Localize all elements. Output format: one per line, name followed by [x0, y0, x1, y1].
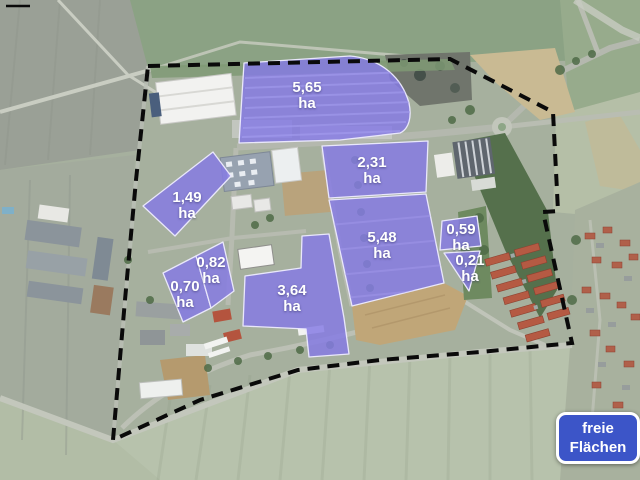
legend-free-areas: freie Flächen	[556, 412, 640, 464]
legend-line-1: freie	[559, 419, 637, 438]
parcel-5-65-polygon	[239, 56, 410, 143]
parcel-2-31-polygon	[322, 141, 428, 198]
site-plan-map: 5,65ha 2,31ha 5,48ha 1,49ha 0,82ha 0,70h…	[0, 0, 640, 480]
parcel-0-59-polygon	[440, 216, 481, 250]
legend-line-2: Flächen	[559, 438, 637, 457]
aerial-basemap	[0, 0, 640, 480]
